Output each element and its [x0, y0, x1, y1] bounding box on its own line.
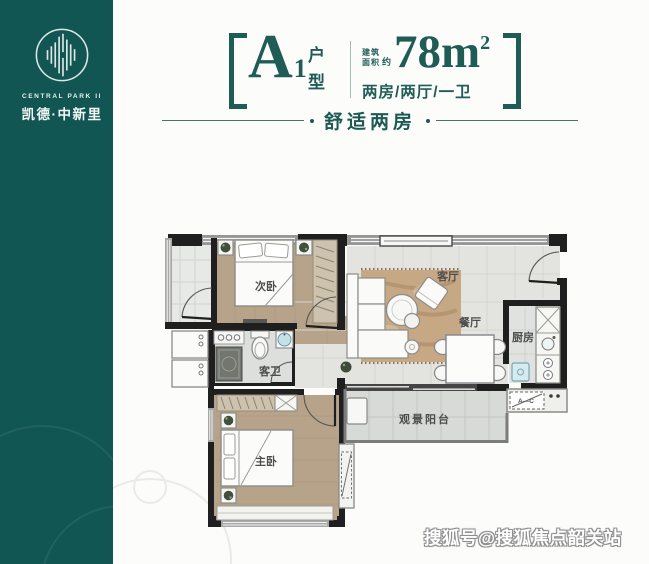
layout-summary: 两房/两厅/一卫: [362, 80, 490, 102]
tagline-row: 舒适两房: [162, 107, 578, 134]
brand-logo: CENTRAL PARK II 凯德·中新里: [14, 26, 110, 123]
unit-letter: A: [248, 26, 293, 88]
tagline-dot-right: [426, 119, 430, 123]
brand-name-en: CENTRAL PARK II: [14, 93, 110, 100]
label-balcony: 观景阳台: [399, 412, 451, 426]
unit-name: A 1: [248, 26, 307, 88]
area-sup: 2: [480, 32, 490, 54]
label-master-bedroom: 主卧: [255, 454, 277, 468]
area-label: 建筑 面积: [362, 48, 380, 68]
label-living-room: 客厅: [436, 269, 459, 283]
page: CENTRAL PARK II 凯德·中新里 A 1 户 型 建筑 面积 约 7…: [0, 0, 649, 564]
label-dining-room: 餐厅: [458, 315, 481, 329]
unit-number: 1: [294, 56, 307, 82]
watermark: 搜狐号@搜狐焦点韶关站: [424, 525, 622, 550]
unit-type-char1: 户: [308, 42, 325, 69]
unit-type-char2: 型: [308, 69, 325, 96]
tagline-line-left: [162, 120, 304, 121]
left-bracket: [229, 33, 247, 109]
tagline-dot-left: [310, 119, 314, 123]
area-block: 建筑 面积 约 78m2 两房/两厅/一卫: [362, 33, 490, 102]
area-approx: 约: [382, 55, 391, 68]
label-ac-platform: A—C: [518, 398, 534, 405]
unit-type: 户 型: [308, 42, 325, 96]
right-bracket: [503, 33, 521, 109]
label-secondary-bedroom: 次卧: [255, 279, 277, 293]
label-kitchen: 厨房: [512, 330, 534, 344]
label-guest-bathroom: 客卫: [258, 364, 281, 378]
central-park-logo-icon: [33, 26, 91, 84]
header-divider: [350, 41, 351, 98]
area-value: 78m2: [394, 33, 490, 73]
tagline-line-right: [436, 120, 578, 121]
brand-name-cn: 凯德·中新里: [14, 103, 110, 123]
floorplan: 次卧 客厅 餐厅 厨房 客卫 主卧 观景阳台 A—C: [155, 226, 585, 534]
tagline-text: 舒适两房: [324, 107, 416, 134]
